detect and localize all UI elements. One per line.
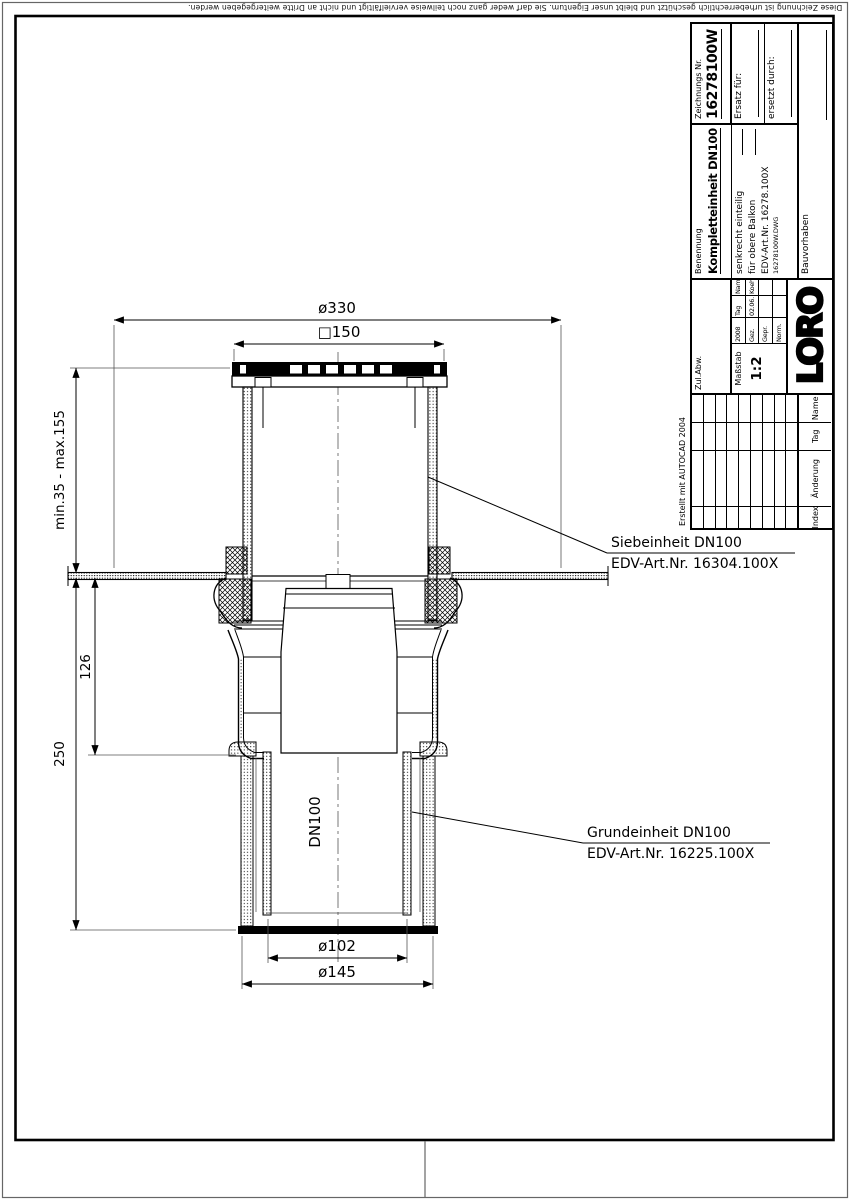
leader-lines <box>412 477 795 843</box>
copyright-notice: Diese Zeichnung ist urheberrechtlich ges… <box>188 1 846 14</box>
index-row <box>704 395 716 528</box>
replacement-for-cell: Ersatz für: <box>732 24 765 123</box>
scale-section: Zul.Abw. Maßstab 1:2 2008 Tag Name Gez. … <box>692 278 832 393</box>
pipe-size-label: DN100 <box>306 796 324 847</box>
scale-value: 1:2 <box>749 344 765 393</box>
drawn-label: Gez. <box>746 318 760 343</box>
grund-label-line1: Grundeinheit DN100 <box>587 825 731 841</box>
signature-table: 2008 Tag Name Gez. 02.06. Koeh Gepr. Nor… <box>732 280 786 343</box>
drawn-name: Koeh <box>746 280 760 296</box>
dim-outlet-inner: ø102 <box>318 937 356 955</box>
year-cell: 2008 <box>732 318 746 343</box>
sieb-label-line2: EDV-Art.Nr. 16304.100X <box>611 556 779 572</box>
designation-label: Benennung <box>694 129 703 274</box>
index-col-label: Index <box>799 506 831 528</box>
replacement-for-label: Ersatz für: <box>734 73 744 119</box>
support-ring <box>252 575 428 589</box>
desc-line-2: für obere Balkon <box>748 200 758 274</box>
checked-label: Gepr. <box>759 318 773 343</box>
dim-grate: □150 <box>318 323 361 341</box>
desc-line-3: EDV-Art.Nr. 16278.100X <box>761 166 771 274</box>
title-block: Erstellt mit AUTOCAD 2004 Index Änderung… <box>690 22 834 530</box>
desc-line-1: senkrecht einteilig <box>735 191 745 274</box>
scale-label: Maßstab <box>734 344 743 393</box>
name-header: Name <box>732 280 746 296</box>
grund-label-line2: EDV-Art.Nr. 16225.100X <box>587 846 755 862</box>
project-cell: Bauvorhaben <box>797 24 832 278</box>
drawing-number-section: Zeichnungs Nr. 16278100W Ersatz für: ers… <box>692 24 797 123</box>
index-row <box>727 395 739 528</box>
index-header: Index Änderung Tag Name <box>798 395 831 528</box>
index-row <box>739 395 751 528</box>
designation-section: Benennung Kompletteinheit DN100 senkrech… <box>692 123 797 278</box>
index-row <box>775 395 787 528</box>
replaced-by-label: ersetzt durch: <box>767 56 777 119</box>
index-row <box>751 395 763 528</box>
index-row <box>786 395 798 528</box>
drawing-no-value: 16278100W <box>705 29 722 119</box>
description-lines: senkrecht einteilig für obere Balkon EDV… <box>732 125 797 278</box>
tolerance-cell: Zul.Abw. <box>692 280 732 393</box>
sieb-label-line1: Siebeinheit DN100 <box>611 535 742 551</box>
insert <box>281 589 397 754</box>
project-label: Bauvorhaben <box>801 214 811 274</box>
company-logo: LORO <box>788 280 832 393</box>
dim-top-width: ø330 <box>318 299 356 317</box>
tag-header: Tag <box>732 296 746 318</box>
logo-text: LORO <box>791 287 831 385</box>
index-row <box>716 395 728 528</box>
drawn-date: 02.06. <box>746 296 760 318</box>
grate <box>232 362 447 428</box>
desc-line-4: 16278100W.DWG <box>772 129 781 274</box>
name-col-label: Name <box>799 395 831 422</box>
drawing-sheet: Diese Zeichnung ist urheberrechtlich ges… <box>0 0 850 1200</box>
drawing-no-label: Zeichnungs Nr. <box>694 28 703 119</box>
index-row <box>692 395 704 528</box>
scale-cell: Maßstab 1:2 2008 Tag Name Gez. 02.06. Ko… <box>732 280 788 393</box>
dim-depth-total: 250 <box>52 741 68 767</box>
designation-value: Kompletteinheit DN100 <box>706 128 721 274</box>
replaced-by-cell: ersetzt durch: <box>765 24 797 123</box>
revision-index-table: Index Änderung Tag Name <box>692 393 832 528</box>
aenderung-col-label: Änderung <box>799 450 831 506</box>
tag-col-label: Tag <box>799 422 831 451</box>
index-row <box>763 395 775 528</box>
dim-depth-mid: 126 <box>78 654 94 680</box>
autocad-note: Erstellt mit AUTOCAD 2004 <box>678 417 687 526</box>
tail-pipe <box>263 752 411 915</box>
dim-outlet-outer: ø145 <box>318 963 356 981</box>
norm-label: Norm. <box>773 318 787 343</box>
insert-handle <box>326 575 350 589</box>
dim-height-range: min.35 - max.155 <box>52 410 68 530</box>
